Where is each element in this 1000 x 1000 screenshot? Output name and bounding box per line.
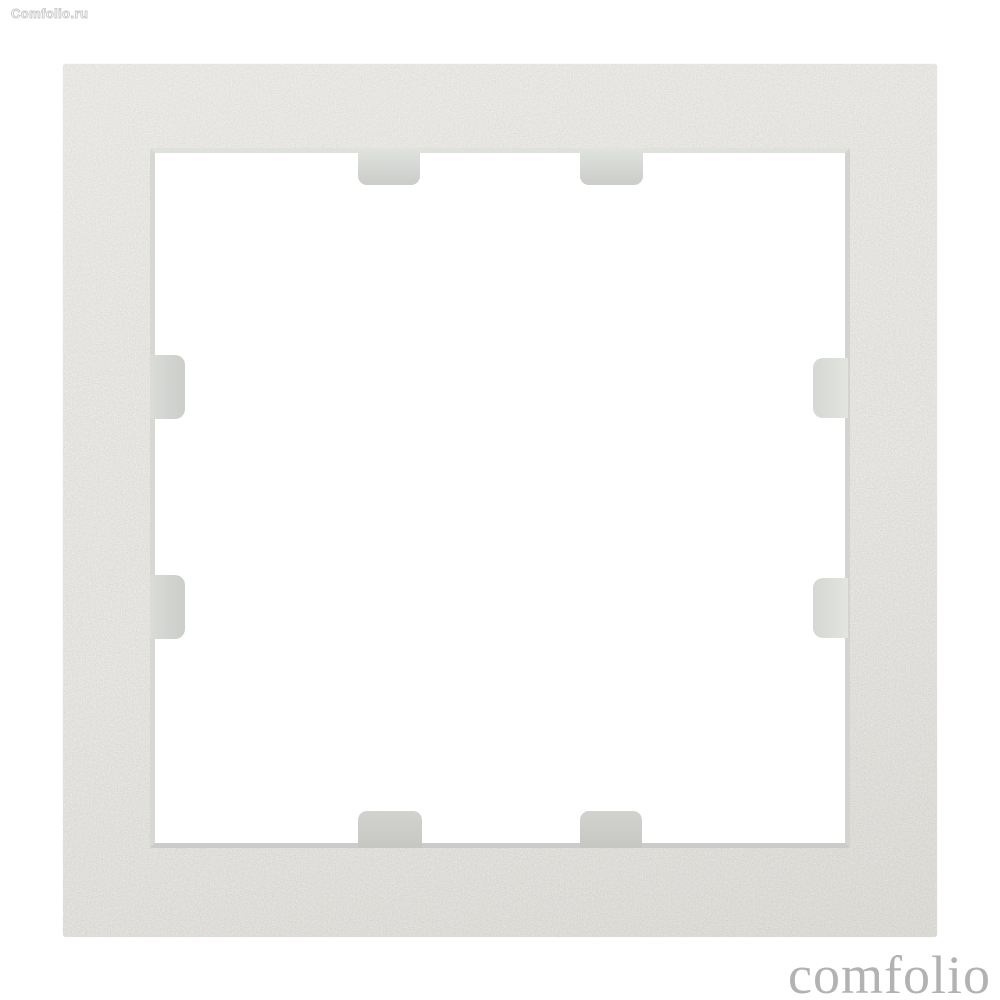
mounting-clip-bottom-left [358,811,422,848]
mounting-clip-bottom-right [580,811,642,848]
mounting-clip-left-upper [150,355,185,419]
mounting-clip-left-lower [150,575,185,639]
watermark-brand-wordmark: comfolio [788,948,991,1000]
mounting-clip-right-upper [813,358,848,418]
switch-frame [63,64,937,937]
mounting-clip-top-right [580,148,643,185]
frame-window-cutout [150,148,850,848]
mounting-clip-top-left [358,148,420,185]
product-photo: Comfolio.ru [0,0,1000,1000]
mounting-clip-right-lower [813,578,848,638]
watermark-site-label: Comfolio.ru [11,6,88,21]
